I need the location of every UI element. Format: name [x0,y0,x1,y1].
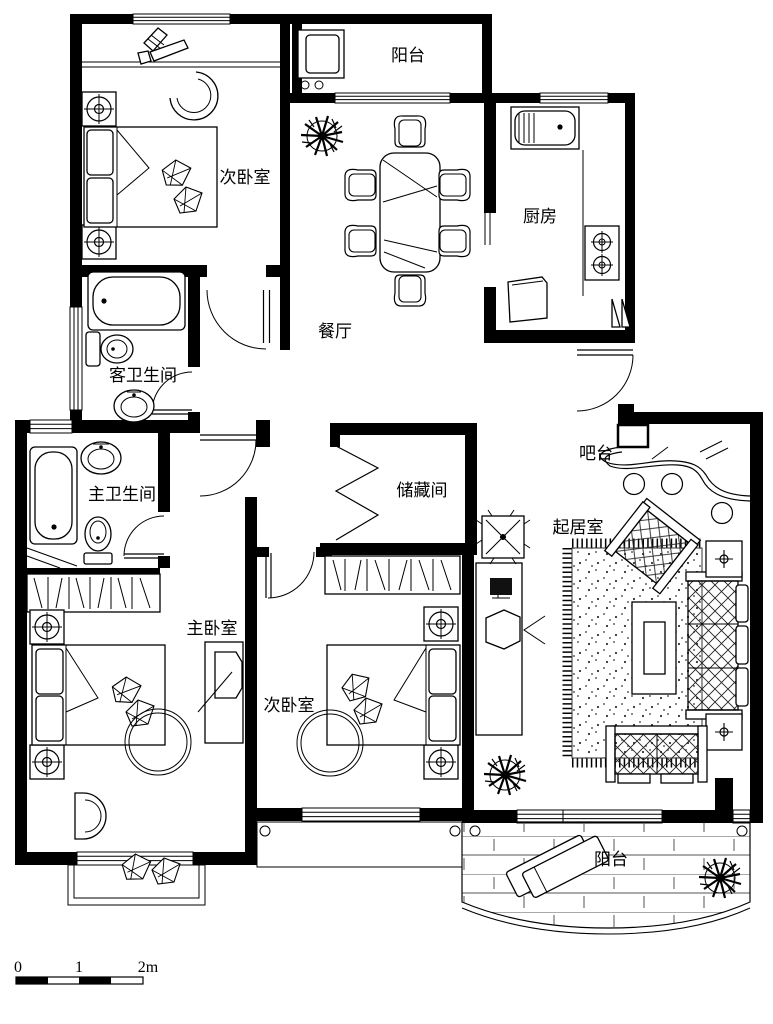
window [70,307,82,410]
bed [327,645,460,745]
washing-machine [298,30,344,89]
nightstand-lamp [424,607,458,641]
room-label-master-bedroom: 主卧室 [187,619,238,639]
nightstand-lamp [30,745,64,779]
corner-shelf [27,548,77,568]
room-label-storage: 储藏间 [397,481,448,501]
room-label-bedroom-top: 次卧室 [220,168,271,188]
scale-tick-0: 0 [14,959,22,976]
bathtub [88,272,185,330]
chair [75,793,106,839]
window [517,810,563,823]
door-hall [200,435,256,496]
pedestal-sink [114,390,154,422]
dining-chair [394,275,425,306]
room-label-bedroom-bottom: 次卧室 [264,696,315,716]
plant-icon [484,755,526,795]
desk-lamp-sketch [138,28,188,64]
door-bedroom-top [207,290,270,349]
terrace-strip [257,822,462,867]
dining-chair [439,169,470,200]
door-entry [577,350,633,411]
master-bath-furniture [27,442,121,568]
counter-marks [652,441,728,459]
master-bedroom-furniture [30,610,243,839]
stove [585,226,619,280]
room-label-master-bath: 主卫生间 [88,485,156,505]
room-label-guest-bath: 客卫生间 [109,366,177,386]
dining-chair [345,225,376,256]
door-storage-folding [336,446,378,540]
window [563,810,662,823]
loveseat [606,726,707,783]
scale-bar-segment [16,977,48,984]
room-label-kitchen: 厨房 [523,207,557,227]
room-label-dining: 餐厅 [318,322,352,342]
closet-shelf-line [82,62,280,67]
nightstand-lamp [30,610,64,644]
cabinet [508,277,547,322]
plant-icon [301,116,343,156]
door-bedroom-bottom [266,552,314,598]
room-label-living: 起居室 [553,518,604,538]
coffee-table [632,602,676,694]
plant-box [476,510,530,564]
toilet [84,517,112,564]
bar-stool [712,503,733,524]
dining-chair [439,225,470,256]
side-table [706,714,742,750]
scale-tick-2: 2m [138,959,159,976]
balcony-bottom [257,822,750,934]
nightstand-lamp [82,92,116,126]
master-wardrobe [27,574,160,612]
floor-plan: 阳台 次卧室 厨房 餐厅 客卫生间 主卫生间 储藏间 吧台 起居室 主卧室 次卧… [0,0,773,1024]
dresser [198,642,243,743]
door-master-bath [124,516,164,558]
dining-chair [345,169,376,200]
sink [81,442,121,474]
window [133,14,230,24]
floor-plan-page: 阳台 次卧室 厨房 餐厅 客卫生间 主卫生间 储藏间 吧台 起居室 主卧室 次卧… [0,0,773,1024]
nightstand-lamp [82,225,116,259]
dining-table [380,153,440,272]
window [733,810,750,823]
bathtub [30,447,77,544]
room-label-bar: 吧台 [579,444,613,464]
window [335,93,450,103]
tiled-floor [462,822,750,928]
room-label-balcony-bottom: 阳台 [594,850,628,870]
toilet [86,332,133,366]
bar-stool [624,474,645,495]
scale-bar-segment [79,977,111,984]
window [540,93,608,103]
bar-stool [662,474,683,495]
tv-cabinet [476,563,545,735]
bedroom-top-furniture [82,28,280,259]
bed [84,127,217,227]
bar-counter [600,425,750,501]
guest-bath-furniture [86,272,185,422]
bed [32,645,165,745]
window [302,808,420,821]
sofa-main [686,572,748,719]
living-furniture [476,425,750,795]
nightstand-lamp [424,745,458,779]
dining-furniture [301,116,470,306]
room-label-balcony-top: 阳台 [391,46,425,66]
side-table [706,541,742,577]
sink [511,107,579,149]
door-kitchen-open [485,213,490,245]
balcony-top-furniture [298,30,344,89]
armchair [170,72,218,120]
dining-chair [394,116,425,147]
scale-bar: 0 1 2m [14,959,159,984]
hall-closet [325,556,460,594]
bedroom-bottom-furniture [297,607,460,779]
window [30,420,72,433]
scale-tick-1: 1 [75,959,83,976]
